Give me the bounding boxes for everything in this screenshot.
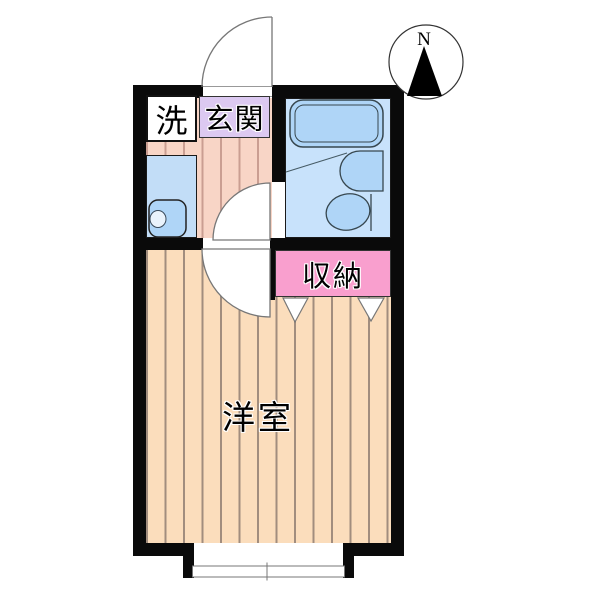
entrance-box: 玄関	[199, 96, 270, 138]
wall-bay-column-right	[343, 543, 354, 578]
storage-box: 収納	[275, 250, 391, 297]
wall-bottom-right	[346, 543, 404, 556]
room-door-threshold	[203, 238, 270, 250]
entrance-door-arc	[202, 17, 272, 87]
sliding-window-icon	[193, 563, 345, 581]
wall-right	[391, 85, 404, 556]
laundry-label: 洗	[155, 96, 187, 142]
washroom-area	[146, 155, 197, 238]
entrance-label: 玄関	[204, 96, 264, 138]
floor-plan: 洗 玄関 収納 洋室	[0, 0, 600, 600]
wall-bay-column-left	[183, 543, 194, 578]
wall-left	[133, 85, 146, 556]
bathroom-area	[285, 98, 391, 238]
wall-hall-bathroom	[272, 98, 285, 182]
wall-mid-bathroom	[272, 238, 404, 250]
western-room-label: 洋室	[198, 395, 318, 435]
wall-top-right	[272, 85, 404, 98]
north-label: N	[417, 29, 431, 50]
wall-mid-left	[133, 238, 203, 250]
compass-needle-icon	[407, 46, 442, 96]
laundry-room-box: 洗	[146, 95, 197, 142]
storage-label: 収納	[302, 253, 364, 295]
